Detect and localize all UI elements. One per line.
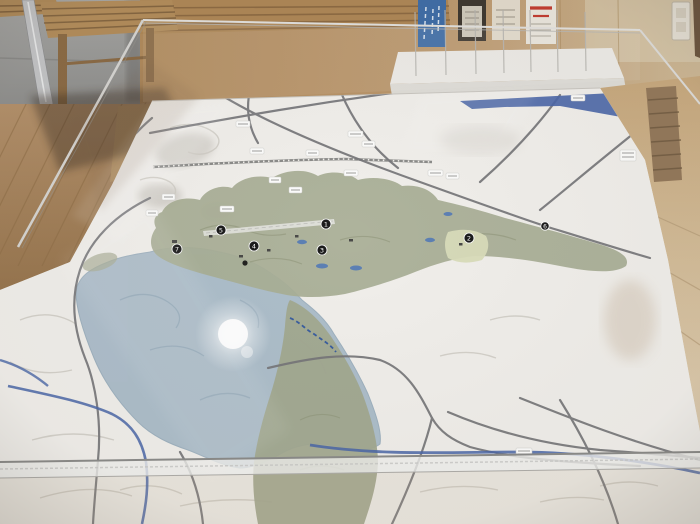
museum-relief-map-photo: 1 2 3 4 5 (0, 0, 700, 524)
photo-canvas: 1 2 3 4 5 (0, 0, 700, 524)
vignette (0, 0, 700, 524)
